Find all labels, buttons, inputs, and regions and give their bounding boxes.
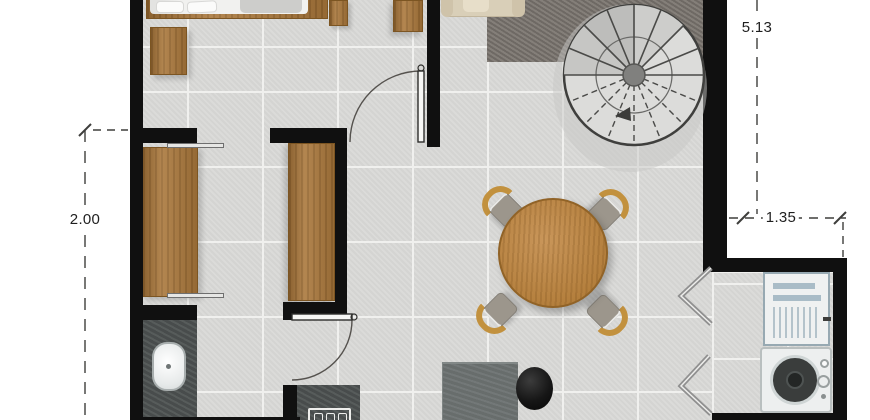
sliding-door-top <box>167 143 224 148</box>
refrigerator <box>763 272 830 346</box>
washing-machine <box>760 347 832 413</box>
wall-bathroom-stub <box>283 385 297 420</box>
desk-chair <box>516 367 553 410</box>
sliding-door-bottom <box>167 293 224 298</box>
wardrobe-right <box>288 143 335 301</box>
burner <box>326 413 335 420</box>
fridge-shelf <box>773 295 821 301</box>
washer-dial <box>817 375 830 388</box>
floor-plan: 5.13 1.35 2.00 <box>0 0 870 420</box>
sofa-armrest <box>512 0 525 17</box>
wall-right-upper <box>703 0 727 262</box>
nightstand <box>329 0 348 26</box>
wall-closet-bath-left <box>130 305 197 320</box>
wall-kitchen-top <box>703 258 847 272</box>
desk <box>442 362 518 420</box>
washer-button <box>821 394 826 399</box>
sofa-armrest <box>441 0 453 17</box>
bed-pillow <box>156 1 184 13</box>
washer-knob <box>820 359 829 368</box>
sink-drain <box>166 364 171 369</box>
wall-right-lower <box>833 258 847 420</box>
wardrobe-left <box>142 147 198 297</box>
wall-closet-bath-right <box>283 302 347 320</box>
dining-table <box>498 198 608 308</box>
cooktop <box>308 408 351 420</box>
dresser <box>150 27 187 75</box>
fridge-grill <box>773 307 821 338</box>
burner <box>314 413 323 420</box>
dimension-label-left-vertical: 2.00 <box>67 211 103 228</box>
side-cabinet <box>393 0 423 32</box>
dimension-label-right-vertical: 5.13 <box>739 19 775 36</box>
wall-kitchen-bottom <box>712 413 847 420</box>
washer-drum-center <box>786 371 804 389</box>
dim-tick <box>79 124 91 136</box>
sofa-cushion <box>463 0 489 12</box>
wall-bedroom-closet-left <box>143 128 197 143</box>
fridge-handle <box>823 317 831 321</box>
bed-duvet <box>240 0 302 13</box>
bed-pillow <box>187 0 218 14</box>
burner <box>338 413 347 420</box>
wall-closet-east <box>335 128 347 320</box>
dim-tick <box>834 212 846 224</box>
wall-left <box>130 0 143 420</box>
dim-tick <box>737 212 749 224</box>
wall-bedroom-living <box>427 0 440 147</box>
dimension-label-right-horizontal: 1.35 <box>763 209 799 226</box>
fridge-shelf <box>773 283 815 289</box>
